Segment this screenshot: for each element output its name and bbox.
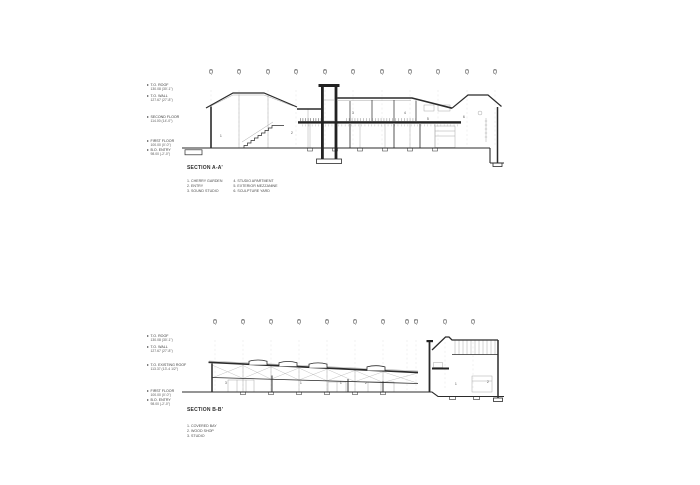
- grid-bubble: E: [323, 69, 328, 74]
- grid-bubble: H: [408, 69, 413, 74]
- elevation-value: 98.00 (-2'-0"): [151, 152, 171, 156]
- section-title: SECTION A-A': [187, 165, 223, 171]
- elevation-label: T.O. WALL127.67 (27'-8"): [147, 94, 173, 102]
- elevation-label: T.O. ROOF130.08 (30'-1"): [147, 83, 173, 91]
- legend-b: 1. COVERED BAY2. WOOD SHOP3. STUDIO: [187, 424, 217, 439]
- room-number: 2: [487, 381, 489, 384]
- datum-arrow-icon: [147, 149, 149, 151]
- section-title: SECTION B-B': [187, 407, 223, 413]
- grid-bubble: A: [213, 319, 218, 324]
- room-number: 5: [427, 118, 429, 121]
- room-number: 2: [365, 382, 367, 385]
- legend-column: 1. COVERED BAY2. WOOD SHOP3. STUDIO: [187, 424, 217, 439]
- grid-bubble: J: [465, 69, 470, 74]
- room-number: 3: [225, 382, 227, 385]
- grid-bubble: I: [436, 69, 441, 74]
- elevation-value: 130.08 (30'-1"): [151, 338, 173, 342]
- grid-bubble: G: [381, 319, 386, 324]
- elevation-label: T.O. WALL127.67 (27'-8"): [147, 345, 173, 353]
- grid-bubble: D: [297, 319, 302, 324]
- elevation-value: 130.08 (30'-1"): [151, 87, 173, 91]
- elevation-label: SECOND FLOOR114.00 (14'-0"): [147, 115, 179, 123]
- datum-arrow-icon: [147, 399, 149, 401]
- section-bb-drawing: [180, 328, 505, 423]
- datum-arrow-icon: [147, 335, 149, 337]
- section-bb: ABCDEFGHH.1IJ T.O. ROOF130.08 (30'-1")T.…: [145, 312, 515, 472]
- room-number: 1: [340, 382, 342, 385]
- grid-bubble: H: [405, 319, 410, 324]
- cut-linework: [182, 337, 504, 402]
- elevation-label: B.O. ENTRY98.00 (-2'-0"): [147, 398, 171, 406]
- elevation-value: 98.00 (-2'-0"): [151, 402, 171, 406]
- grid-bubble: G: [380, 69, 385, 74]
- elevation-value: 100.00 (0'-0"): [151, 393, 175, 397]
- legend-item: 6. SCULPTURE YARD: [233, 189, 277, 194]
- datum-arrow-icon: [147, 140, 149, 142]
- grid-bubble: C: [269, 319, 274, 324]
- grid-bubble: A: [209, 69, 214, 74]
- legend-item: 3. STUDIO: [187, 434, 217, 439]
- room-number: 6: [463, 116, 465, 119]
- grid-bubble: D: [294, 69, 299, 74]
- legend-a: 1. CHERRY GARDEN2. ENTRY3. SOUND STUDIO4…: [187, 179, 278, 194]
- elevation-value: 127.67 (27'-8"): [151, 349, 173, 353]
- datum-arrow-icon: [147, 364, 149, 366]
- datum-arrow-icon: [147, 346, 149, 348]
- elevation-value: 100.00 (0'-0"): [151, 143, 175, 147]
- room-number: 1: [220, 135, 222, 138]
- legend-column: 1. CHERRY GARDEN2. ENTRY3. SOUND STUDIO: [187, 179, 222, 194]
- grid-bubble: B: [241, 319, 246, 324]
- legend-column: 4. STUDIO APARTMENT5. EXTERIOR MEZZANINE…: [233, 179, 277, 194]
- section-aa-drawing: [180, 78, 505, 178]
- section-aa: ABCDEFGHIJK T.O. ROOF130.08 (30'-1")T.O.…: [145, 62, 515, 272]
- datum-arrow-icon: [147, 95, 149, 97]
- light-linework: [209, 341, 495, 393]
- room-number: 1: [455, 383, 457, 386]
- grid-bubble: F: [353, 319, 358, 324]
- elevation-value: 114.00 (14'-0"): [151, 119, 180, 123]
- elevation-label: FIRST FLOOR100.00 (0'-0"): [147, 389, 174, 397]
- room-number: 1: [300, 382, 302, 385]
- datum-arrow-icon: [147, 390, 149, 392]
- drawing-sheet: ABCDEFGHIJK T.O. ROOF130.08 (30'-1")T.O.…: [0, 0, 700, 485]
- cut-linework: [182, 93, 504, 167]
- elevation-label: B.O. ENTRY98.00 (-2'-0"): [147, 148, 171, 156]
- elevation-label: FIRST FLOOR100.00 (0'-0"): [147, 139, 174, 147]
- grid-bubble: E: [325, 319, 330, 324]
- elevation-value: 127.67 (27'-8"): [151, 98, 173, 102]
- room-number: 4: [404, 112, 406, 115]
- grid-bubble: I: [443, 319, 448, 324]
- grid-bubble: B: [237, 69, 242, 74]
- room-number: 3: [352, 112, 354, 115]
- grid-bubble: H.1: [414, 319, 419, 324]
- room-number: 2: [291, 132, 293, 135]
- datum-arrow-icon: [147, 116, 149, 118]
- grid-bubble: F: [351, 69, 356, 74]
- legend-item: 3. SOUND STUDIO: [187, 189, 222, 194]
- elevation-label: T.O. ROOF130.08 (30'-1"): [147, 334, 173, 342]
- datum-arrow-icon: [147, 84, 149, 86]
- grid-bubble: K: [493, 69, 498, 74]
- grid-bubble: J: [471, 319, 476, 324]
- grid-bubble: C: [266, 69, 271, 74]
